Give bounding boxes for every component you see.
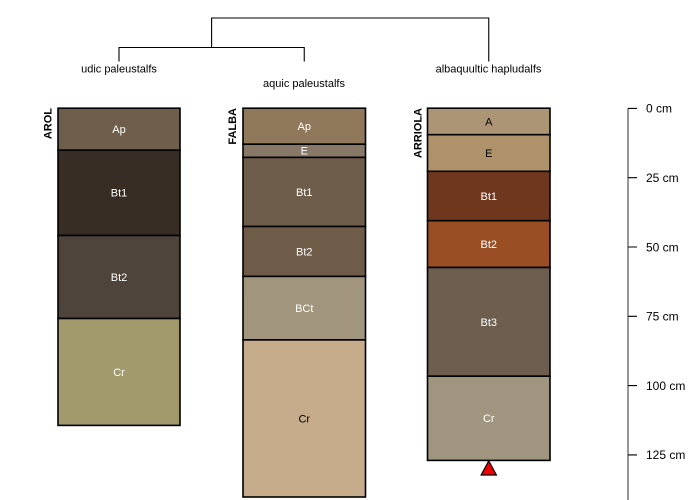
- svg-text:Bt3: Bt3: [480, 317, 497, 329]
- svg-text:A: A: [485, 116, 493, 128]
- svg-text:Ap: Ap: [112, 124, 125, 136]
- svg-text:Cr: Cr: [113, 367, 125, 379]
- svg-text:0 cm: 0 cm: [646, 102, 672, 116]
- svg-text:100 cm: 100 cm: [646, 379, 685, 393]
- svg-text:125 cm: 125 cm: [646, 448, 685, 462]
- svg-text:Cr: Cr: [298, 413, 310, 425]
- svg-text:75 cm: 75 cm: [646, 310, 679, 324]
- svg-text:50 cm: 50 cm: [646, 240, 679, 254]
- svg-text:Bt2: Bt2: [296, 246, 313, 258]
- svg-text:Bt1: Bt1: [111, 188, 128, 200]
- svg-text:E: E: [301, 146, 308, 158]
- svg-text:AROL: AROL: [43, 108, 55, 139]
- svg-text:Cr: Cr: [483, 413, 495, 425]
- svg-text:BCt: BCt: [295, 303, 313, 315]
- svg-text:ARRIOLA: ARRIOLA: [413, 108, 425, 158]
- svg-text:Bt1: Bt1: [480, 191, 497, 203]
- svg-text:Bt2: Bt2: [111, 272, 128, 284]
- svg-text:Bt1: Bt1: [296, 187, 313, 199]
- svg-text:udic paleustalfs: udic paleustalfs: [81, 63, 157, 75]
- svg-text:FALBA: FALBA: [227, 108, 239, 145]
- svg-text:25 cm: 25 cm: [646, 171, 679, 185]
- svg-text:E: E: [485, 148, 492, 160]
- svg-text:aquic paleustalfs: aquic paleustalfs: [263, 78, 345, 90]
- svg-text:Bt2: Bt2: [480, 239, 497, 251]
- svg-text:Ap: Ap: [298, 121, 311, 133]
- svg-text:albaquultic hapludalfs: albaquultic hapludalfs: [436, 63, 542, 75]
